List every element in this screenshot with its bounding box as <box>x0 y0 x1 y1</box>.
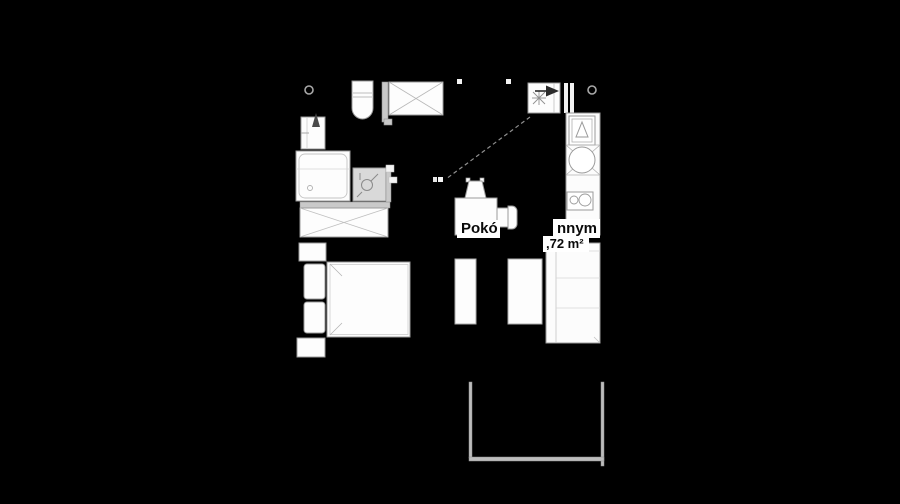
balcony <box>469 382 604 466</box>
socket-icon <box>433 177 437 182</box>
room-label-start: Pokó <box>457 220 500 238</box>
hob-two-burner <box>567 192 593 210</box>
wall-stub <box>457 79 462 84</box>
balcony-rail-right <box>601 382 604 466</box>
toilet <box>352 81 373 119</box>
armchair-back <box>465 181 486 198</box>
kitchen-counter-run <box>566 113 600 235</box>
wall-segment <box>382 82 388 122</box>
shower-tray <box>296 151 350 201</box>
side-table-cap <box>508 206 517 229</box>
wall-bar <box>570 83 574 113</box>
pillow <box>304 302 325 333</box>
column-pipe-icon <box>305 86 313 94</box>
fridge <box>569 116 595 145</box>
round-sink <box>566 145 600 175</box>
wall-bar <box>564 83 568 113</box>
washing-machine <box>300 208 388 237</box>
star-icon <box>532 91 546 105</box>
cabinet <box>455 259 476 324</box>
wall-band <box>300 202 390 208</box>
radiator-cabinet <box>301 113 325 149</box>
sofa <box>546 243 600 343</box>
nightstand <box>297 338 325 357</box>
balcony-rail-bottom <box>469 457 604 461</box>
door-swing-dashed-line <box>446 117 530 179</box>
floor-plan: Pokó nnym ,72 m² <box>0 0 900 504</box>
socket-icon <box>438 177 443 182</box>
crossed-cabinet <box>389 82 443 115</box>
wall-stub <box>389 177 397 183</box>
column-pipe-icon <box>588 86 596 94</box>
pillow <box>304 264 325 299</box>
wall-stub <box>386 165 394 172</box>
wall-segment-foot <box>384 119 392 125</box>
water-heater <box>528 83 560 113</box>
cabinet <box>508 259 542 324</box>
double-bed <box>297 243 410 357</box>
washbasin <box>353 168 386 201</box>
floor-plan-linework <box>0 0 900 504</box>
balcony-rail-left <box>469 382 472 458</box>
room-area-label: ,72 m² <box>543 236 589 252</box>
nightstand <box>299 243 326 261</box>
wall-stub <box>506 79 511 84</box>
